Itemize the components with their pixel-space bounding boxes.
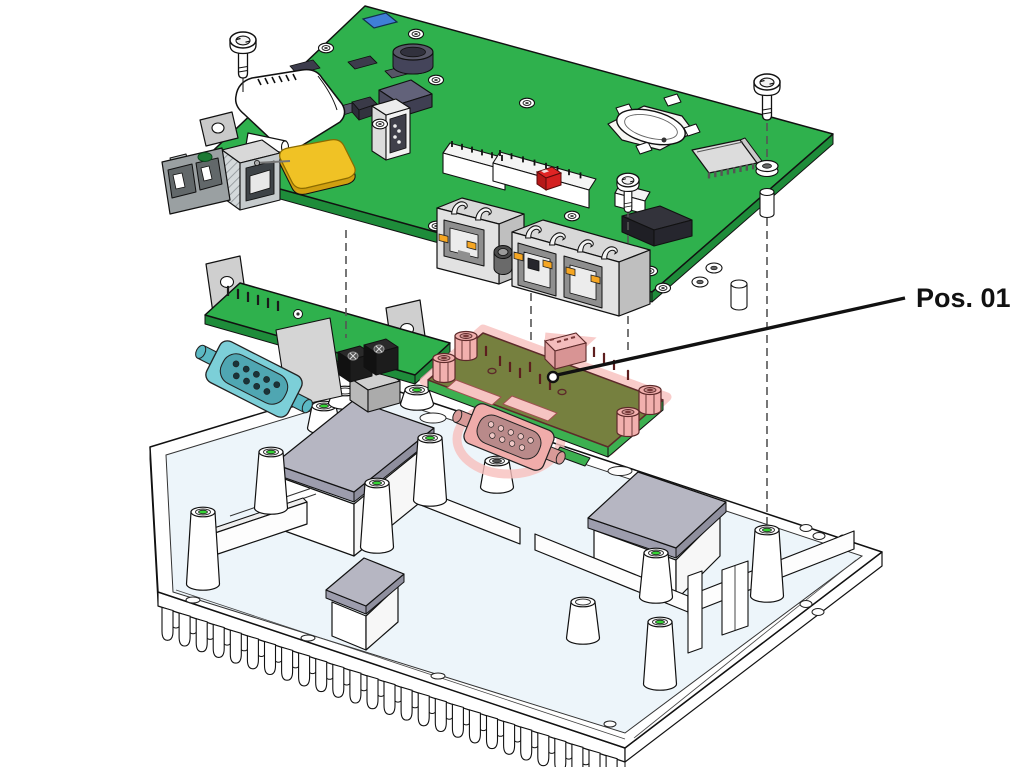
screw-hole-green — [413, 388, 422, 392]
serial-board-via-hole — [296, 312, 299, 315]
chassis-hole — [812, 609, 824, 616]
standoff-body — [567, 602, 600, 644]
antenna-jack — [494, 246, 512, 275]
standoff-body — [361, 483, 394, 553]
pin-tip — [539, 374, 541, 376]
board-screw-hole — [656, 283, 671, 293]
chassis-standoff — [187, 507, 220, 590]
pin-tip — [509, 362, 511, 364]
heatsink-fin — [487, 716, 498, 749]
chassis-standoff — [414, 433, 447, 506]
standoff-ring — [576, 599, 591, 605]
lc-fiber-connector — [162, 148, 230, 214]
standoff-body — [644, 622, 677, 690]
pin-tip — [593, 347, 595, 349]
heatsink-fin — [213, 624, 224, 657]
pin-tip — [485, 346, 487, 348]
board-screw-hole — [520, 98, 535, 108]
diagram-canvas: Pos. 01 — [0, 0, 1024, 767]
pin-tip — [237, 289, 239, 291]
exploded-assembly-diagram: Pos. 01 — [0, 0, 1024, 767]
chassis-hole — [800, 525, 812, 532]
heatsink-fin — [401, 687, 412, 720]
standoff-body — [751, 530, 784, 602]
donut-hole — [661, 287, 665, 289]
heatsink-fin — [555, 738, 566, 767]
chassis-hole — [420, 413, 446, 423]
pos01-module — [424, 329, 667, 479]
usb-connector — [222, 140, 280, 210]
heatsink-fin — [265, 642, 276, 675]
clip-bracket-1 — [688, 571, 702, 653]
red-switch — [537, 167, 561, 190]
screw-hole-green — [199, 510, 208, 514]
pin-tip — [277, 301, 279, 303]
donut-hole — [378, 123, 382, 125]
chassis-hole — [813, 533, 825, 540]
screw-hole-green — [656, 620, 665, 624]
rf-module-tab-hole — [212, 123, 224, 133]
chassis-hole — [800, 601, 812, 608]
chassis-hole — [604, 721, 616, 727]
board-screw-hole — [565, 211, 580, 221]
pos01-standoff-1 — [455, 332, 477, 361]
buzzer — [393, 44, 433, 74]
pin-tip — [227, 286, 229, 288]
heatsink-fin — [418, 693, 429, 726]
screw-hole-green — [267, 450, 276, 454]
board-oval-hole — [198, 153, 212, 162]
board-screw-hole — [409, 29, 424, 39]
pin-tip — [267, 298, 269, 300]
pin-tip — [519, 368, 521, 370]
board-screw-hole — [319, 43, 334, 53]
standoff-body — [187, 512, 220, 590]
chassis-hole — [608, 467, 632, 476]
pin-tip — [529, 362, 531, 364]
heatsink-fin — [299, 653, 310, 686]
heatsink-fin — [504, 721, 515, 754]
chassis-standoff — [361, 478, 394, 553]
donut-hole — [414, 33, 418, 35]
antenna-wire-end — [254, 160, 259, 165]
screw-hole-green — [426, 436, 435, 440]
heatsink-fin — [435, 699, 446, 732]
donut-hole — [525, 102, 529, 104]
pin-tip — [247, 292, 249, 294]
screw-hole-green — [652, 551, 661, 555]
heatsink-fin — [179, 613, 190, 646]
donut-hole — [324, 47, 328, 49]
heatsink-fin — [521, 727, 532, 760]
heatsink-fin — [316, 659, 327, 692]
floating-washers — [692, 263, 747, 310]
chassis-hole — [301, 635, 315, 641]
heatsink-fin — [384, 681, 395, 714]
screw-hole-green — [320, 404, 329, 408]
heatsink-fin — [538, 733, 549, 766]
heatsink-fin — [196, 619, 207, 652]
heatsink-fin — [230, 630, 241, 663]
donut-hole — [570, 215, 574, 217]
heatsink-fin — [247, 636, 258, 669]
pin-tip — [499, 356, 501, 358]
heatsink-fin — [162, 607, 173, 640]
screw-hole-green — [373, 481, 382, 485]
chassis-standoff — [644, 617, 677, 690]
pin-tip — [603, 353, 605, 355]
callout-label: Pos. 01 — [916, 283, 1011, 313]
pin-tip — [257, 295, 259, 297]
heatsink-fin — [350, 670, 361, 703]
donut-hole — [434, 79, 438, 81]
heatsink-fin — [469, 710, 480, 743]
motherboard — [162, 6, 833, 316]
callout-anchor-dot — [548, 372, 558, 382]
standoff-body — [640, 553, 673, 603]
pin-tip — [627, 370, 629, 372]
board-screw-hole — [429, 75, 444, 85]
heatsink-fin — [282, 647, 293, 680]
chassis-standoff — [255, 447, 288, 514]
standoff-body — [255, 452, 288, 514]
vertical-pin-connector — [372, 99, 410, 160]
chassis-standoff — [567, 597, 600, 644]
screw-top-left — [230, 32, 256, 78]
heatsink-fin — [333, 664, 344, 697]
pos01-standoff-3 — [639, 386, 661, 415]
chassis-hole — [186, 597, 200, 603]
pos01-standoff-2 — [433, 354, 455, 383]
heatsink-fin — [572, 744, 583, 767]
board-screw-hole — [373, 119, 388, 129]
heatsink-fin — [452, 704, 463, 737]
bracket-left-hole — [221, 277, 234, 288]
pos01-standoff-4 — [617, 408, 639, 437]
battery-holder-hole — [662, 138, 667, 143]
chassis-hole — [431, 673, 445, 679]
chassis-standoff — [640, 548, 673, 603]
chassis-standoff — [751, 525, 784, 602]
screw-hole — [493, 459, 502, 463]
screw-hole-green — [763, 528, 772, 532]
standoff-body — [414, 438, 447, 506]
heatsink-fin — [367, 676, 378, 709]
heatsink-fin — [589, 750, 600, 767]
